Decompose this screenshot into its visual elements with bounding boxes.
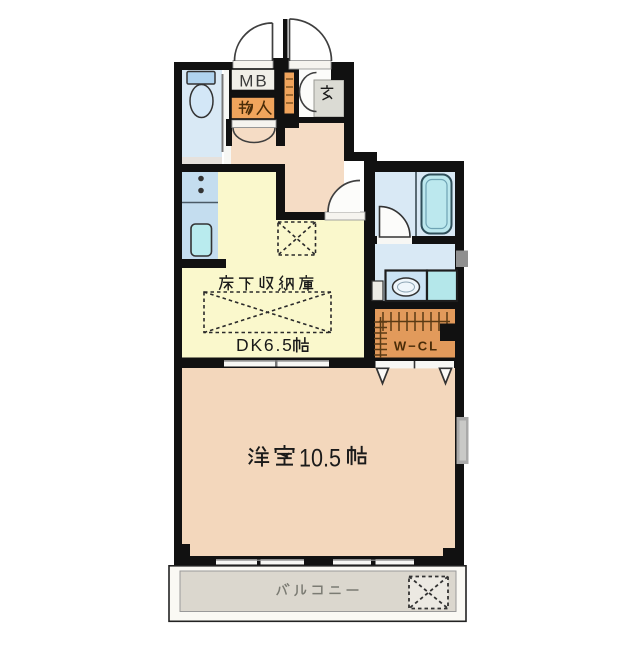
svg-text:DK6.5: DK6.5 xyxy=(236,335,294,355)
svg-text:10.5: 10.5 xyxy=(299,445,341,473)
svg-text:W−CL: W−CL xyxy=(394,339,439,354)
svg-text:MB: MB xyxy=(239,72,269,91)
